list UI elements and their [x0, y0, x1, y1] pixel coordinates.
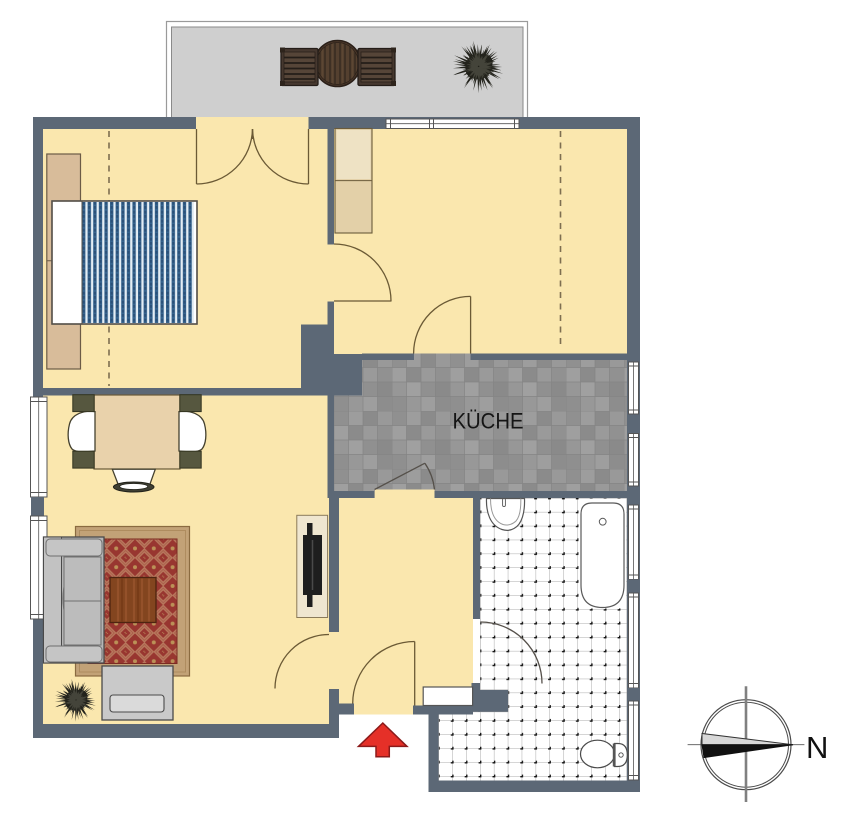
svg-text:KÜCHE: KÜCHE [453, 409, 524, 434]
svg-text:N: N [806, 730, 828, 765]
